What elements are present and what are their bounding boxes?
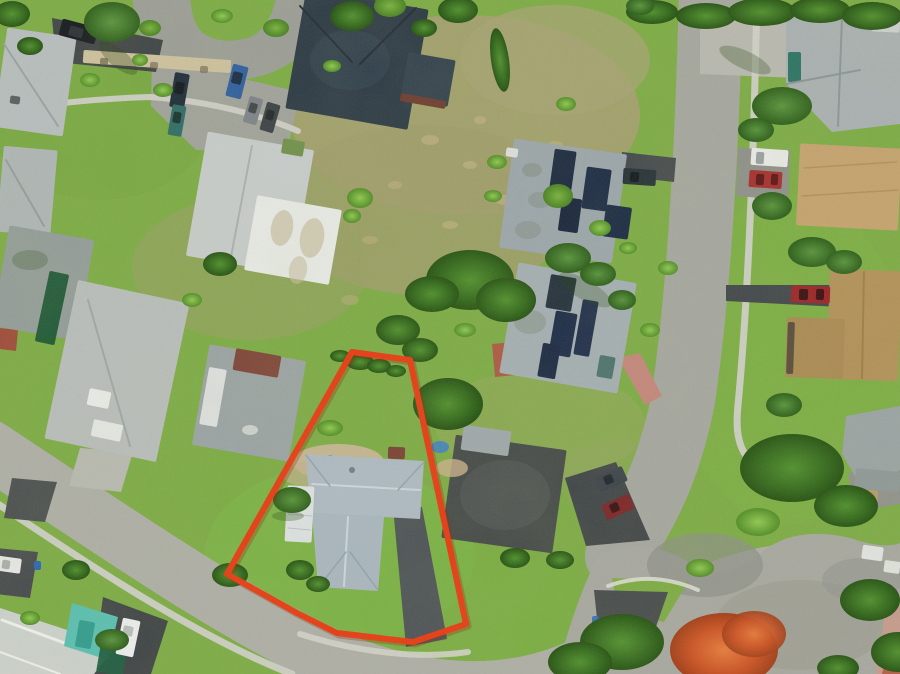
grain-texture-overlay	[0, 0, 900, 674]
aerial-photo	[0, 0, 900, 674]
aerial-photo-canvas	[0, 0, 900, 674]
